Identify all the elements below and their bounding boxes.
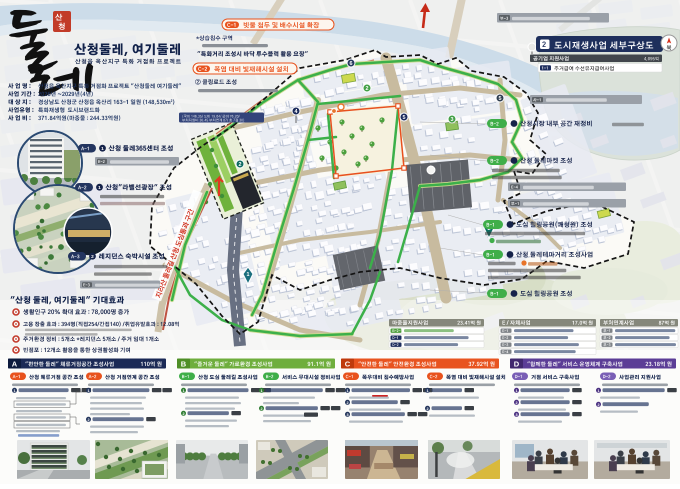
- svg-text:A: A: [12, 360, 18, 369]
- svg-text:2: 2: [91, 254, 94, 260]
- svg-text:2: 2: [366, 86, 369, 92]
- svg-text:3: 3: [451, 117, 454, 123]
- svg-text:1: 1: [515, 389, 517, 393]
- svg-text:2: 2: [346, 401, 348, 405]
- svg-text:2: 2: [515, 401, 517, 405]
- svg-text:B: B: [181, 360, 187, 369]
- svg-text:2: 2: [597, 403, 599, 407]
- svg-text:2: 2: [182, 412, 184, 416]
- svg-text:2: 2: [239, 162, 242, 168]
- svg-text:6: 6: [350, 61, 353, 67]
- svg-text:1: 1: [597, 389, 599, 393]
- svg-text:2: 2: [426, 407, 428, 411]
- svg-text:2: 2: [260, 407, 262, 411]
- svg-text:5: 5: [403, 115, 406, 121]
- svg-text:C: C: [345, 360, 351, 369]
- svg-text:5: 5: [499, 96, 502, 102]
- svg-text:1: 1: [13, 389, 15, 393]
- svg-text:1: 1: [98, 185, 101, 191]
- svg-text:3: 3: [346, 413, 348, 417]
- svg-text:4: 4: [295, 109, 298, 115]
- svg-text:1: 1: [182, 389, 184, 393]
- svg-text:1: 1: [87, 389, 89, 393]
- svg-text:D: D: [514, 360, 520, 369]
- svg-text:1: 1: [101, 146, 104, 152]
- svg-text:1: 1: [346, 389, 348, 393]
- svg-text:1: 1: [260, 389, 262, 393]
- svg-text:2: 2: [87, 418, 89, 422]
- svg-text:1: 1: [247, 272, 250, 278]
- svg-text:3: 3: [515, 413, 517, 417]
- svg-text:1: 1: [426, 389, 428, 393]
